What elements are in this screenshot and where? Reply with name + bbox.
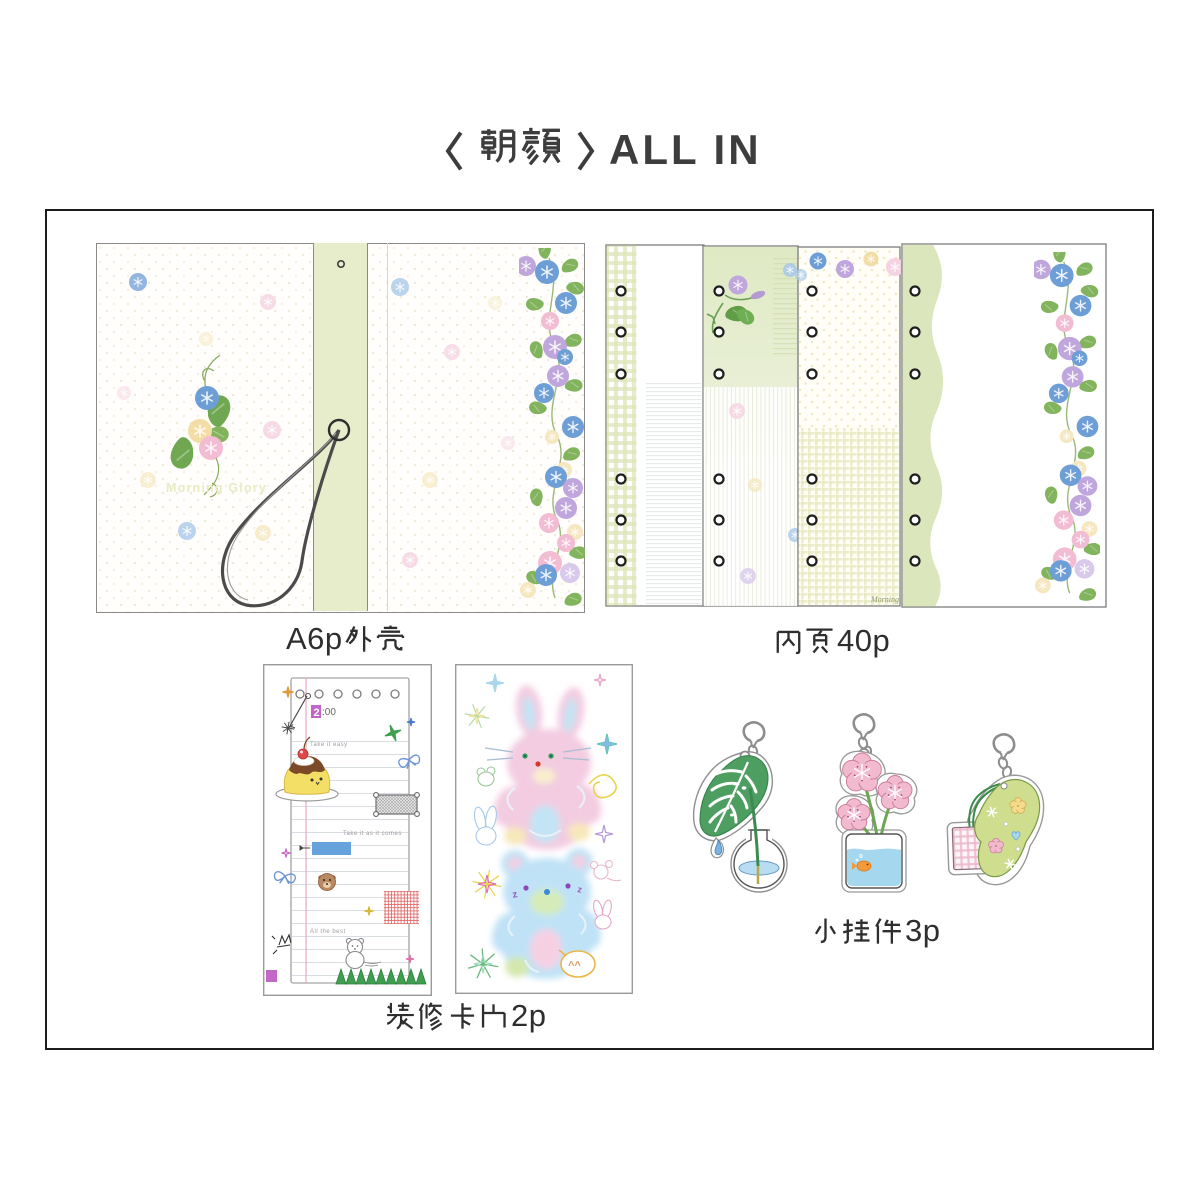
- svg-text:All the best: All the best: [310, 929, 346, 935]
- svg-text:Take it easy: Take it easy: [310, 742, 348, 748]
- svg-text:Morning Glory: Morning Glory: [166, 481, 267, 495]
- svg-text:Morning: Morning: [870, 595, 899, 604]
- svg-text::00: :00: [322, 707, 336, 718]
- svg-text:Take it as it comes: Take it as it comes: [343, 831, 402, 837]
- svg-text:2: 2: [314, 707, 320, 719]
- svg-text:^^: ^^: [568, 960, 581, 972]
